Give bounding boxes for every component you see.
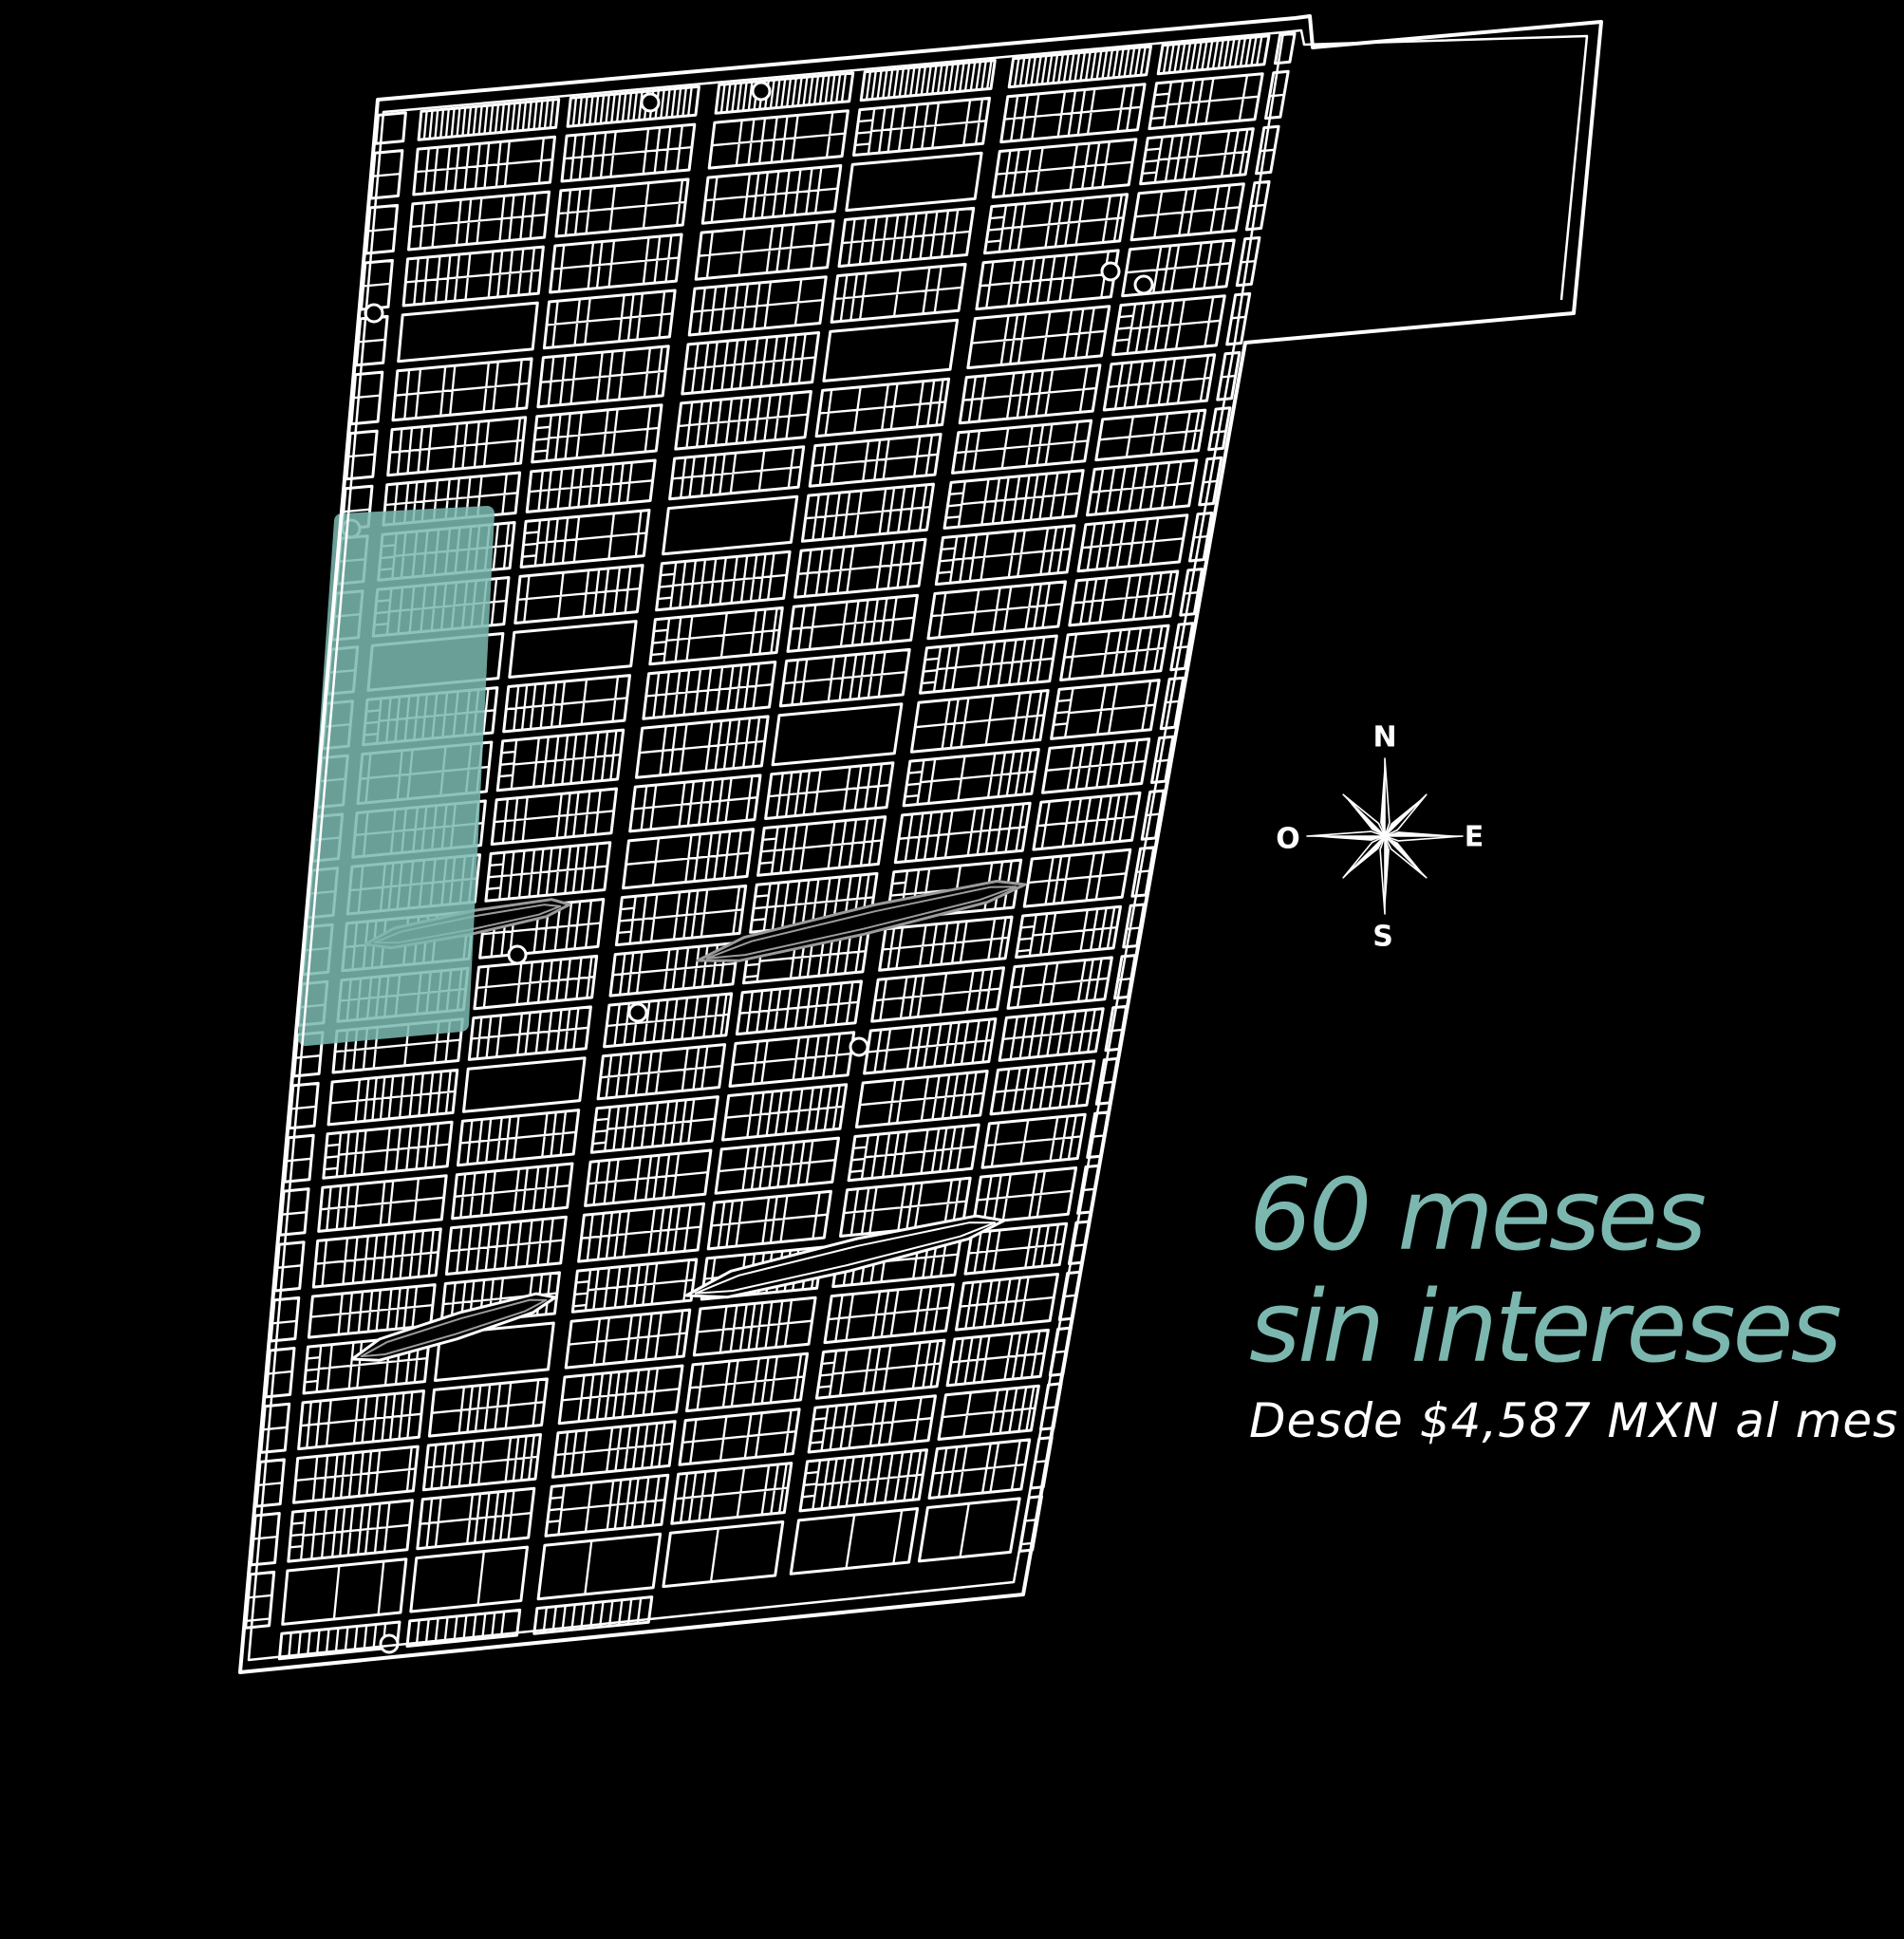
promo-headline-line1: 60 meses — [1249, 1159, 1904, 1271]
compass-label-east: E — [1465, 821, 1484, 854]
cul-de-sac-icon — [642, 94, 659, 111]
site-plan-map — [0, 0, 1904, 1939]
compass-label-north: N — [1372, 721, 1396, 755]
compass-rose-icon — [1307, 758, 1463, 914]
compass-label-south: S — [1372, 921, 1393, 954]
cul-de-sac-icon — [381, 1635, 398, 1652]
promo-text-block: 60 meses sin intereses Desde $4,587 MXN … — [1249, 1159, 1904, 1449]
cul-de-sac-icon — [753, 83, 770, 100]
cul-de-sac-icon — [509, 946, 526, 963]
cul-de-sac-icon — [629, 1004, 646, 1021]
promo-subheadline: Desde $4,587 MXN al mes — [1249, 1392, 1904, 1449]
promo-headline-line2: sin intereses — [1249, 1271, 1904, 1383]
cul-de-sac-icon — [850, 1038, 868, 1055]
cul-de-sac-icon — [1102, 263, 1119, 280]
cul-de-sac-icon — [1135, 276, 1152, 293]
page-background: N S E O 60 meses sin intereses Desde $4,… — [0, 0, 1904, 1939]
compass-label-west: O — [1276, 823, 1300, 856]
cul-de-sac-icon — [365, 305, 383, 322]
